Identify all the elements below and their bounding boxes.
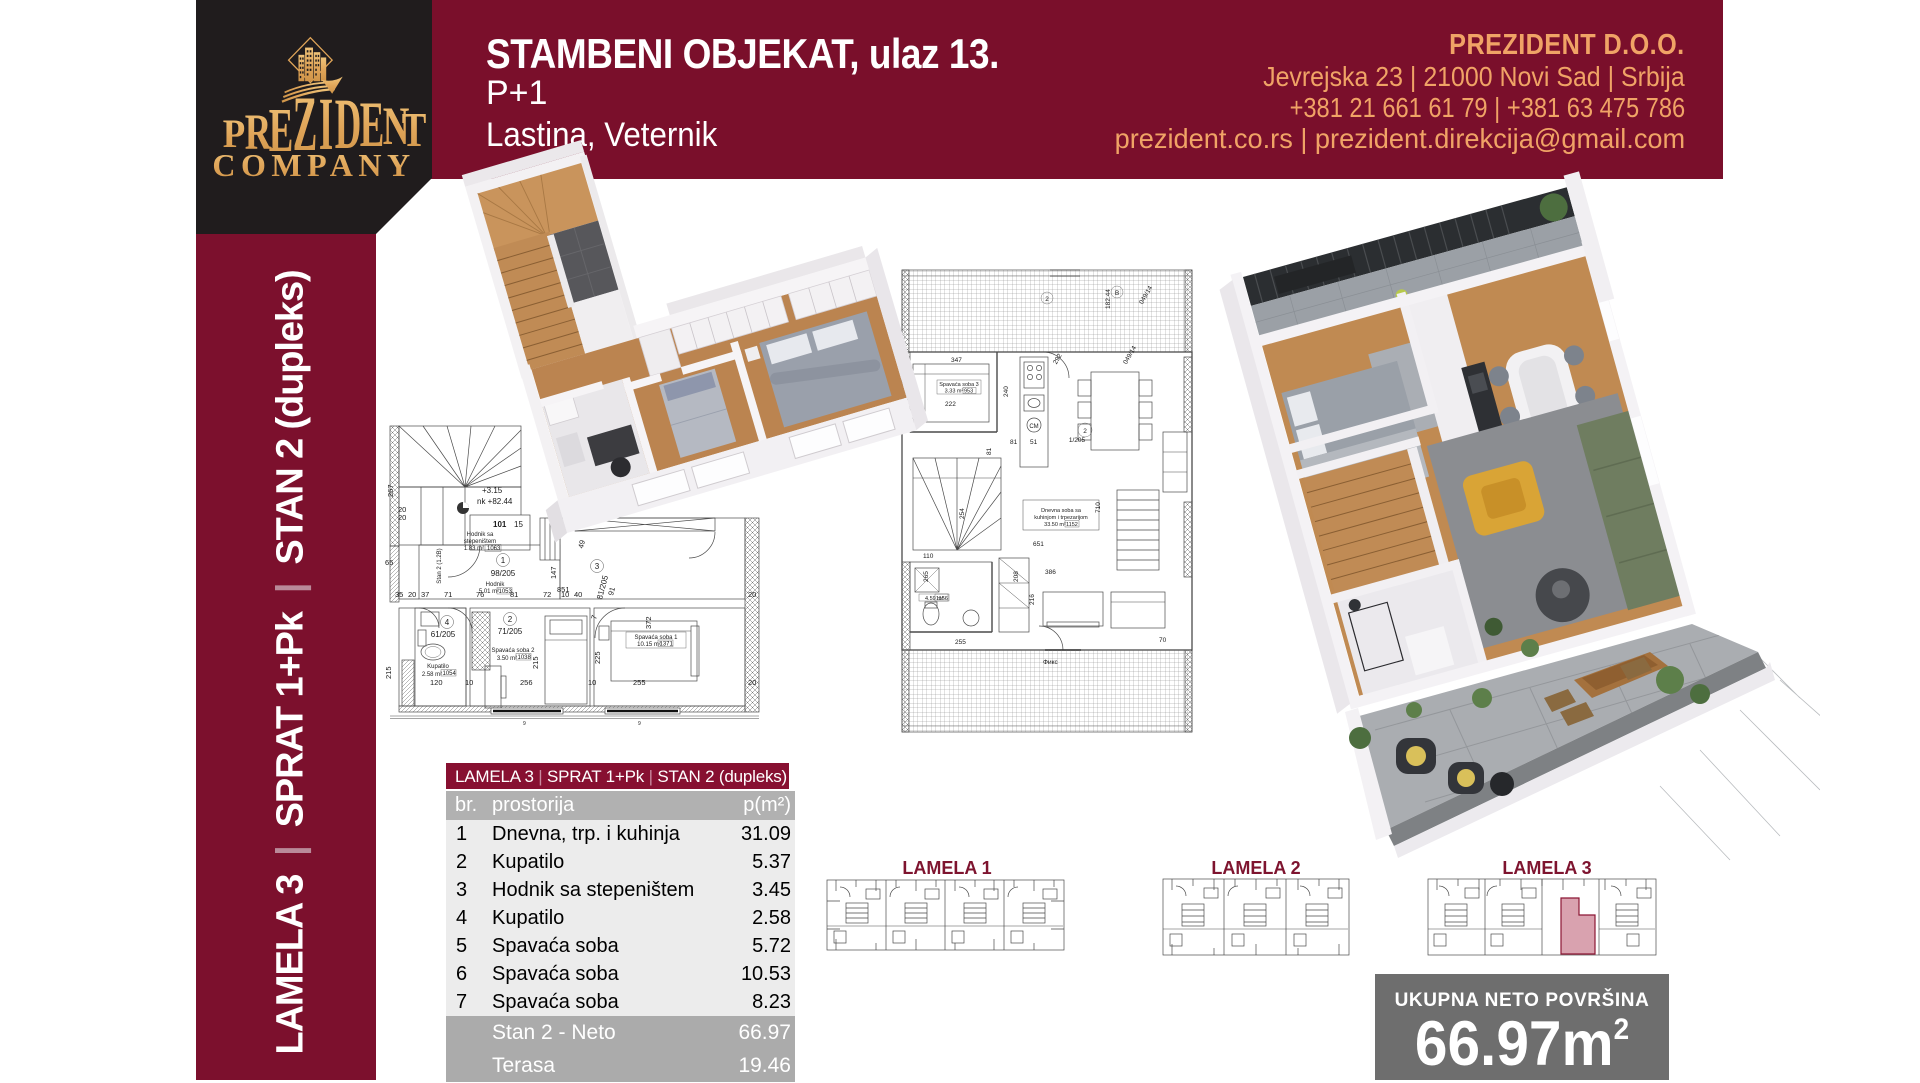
svg-text:20: 20	[398, 513, 406, 522]
svg-text:35: 35	[395, 590, 403, 599]
svg-text:70: 70	[1159, 637, 1167, 644]
svg-text:65: 65	[385, 558, 393, 567]
svg-text:2: 2	[1083, 428, 1087, 435]
svg-text:182.44: 182.44	[1105, 289, 1112, 309]
svg-text:37: 37	[421, 590, 429, 599]
svg-text:Фикс: Фикс	[1043, 659, 1058, 666]
svg-text:2: 2	[1045, 296, 1049, 303]
svg-text:COMPANY: COMPANY	[212, 147, 415, 183]
svg-text:33.50 m²: 33.50 m²	[1044, 522, 1066, 528]
svg-text:215: 215	[385, 666, 393, 679]
svg-text:B: B	[1115, 290, 1119, 297]
svg-text:1/205: 1/205	[1069, 437, 1086, 444]
svg-text:kuhinjom i trpezarijom: kuhinjom i trpezarijom	[1034, 515, 1088, 521]
svg-text:20: 20	[408, 590, 416, 599]
svg-text:386: 386	[1045, 569, 1056, 576]
svg-text:267: 267	[386, 484, 395, 497]
svg-text:1152: 1152	[1066, 522, 1078, 528]
svg-text:Dnevna soba sa: Dnevna soba sa	[1041, 508, 1082, 514]
svg-text:710: 710	[1095, 502, 1102, 513]
